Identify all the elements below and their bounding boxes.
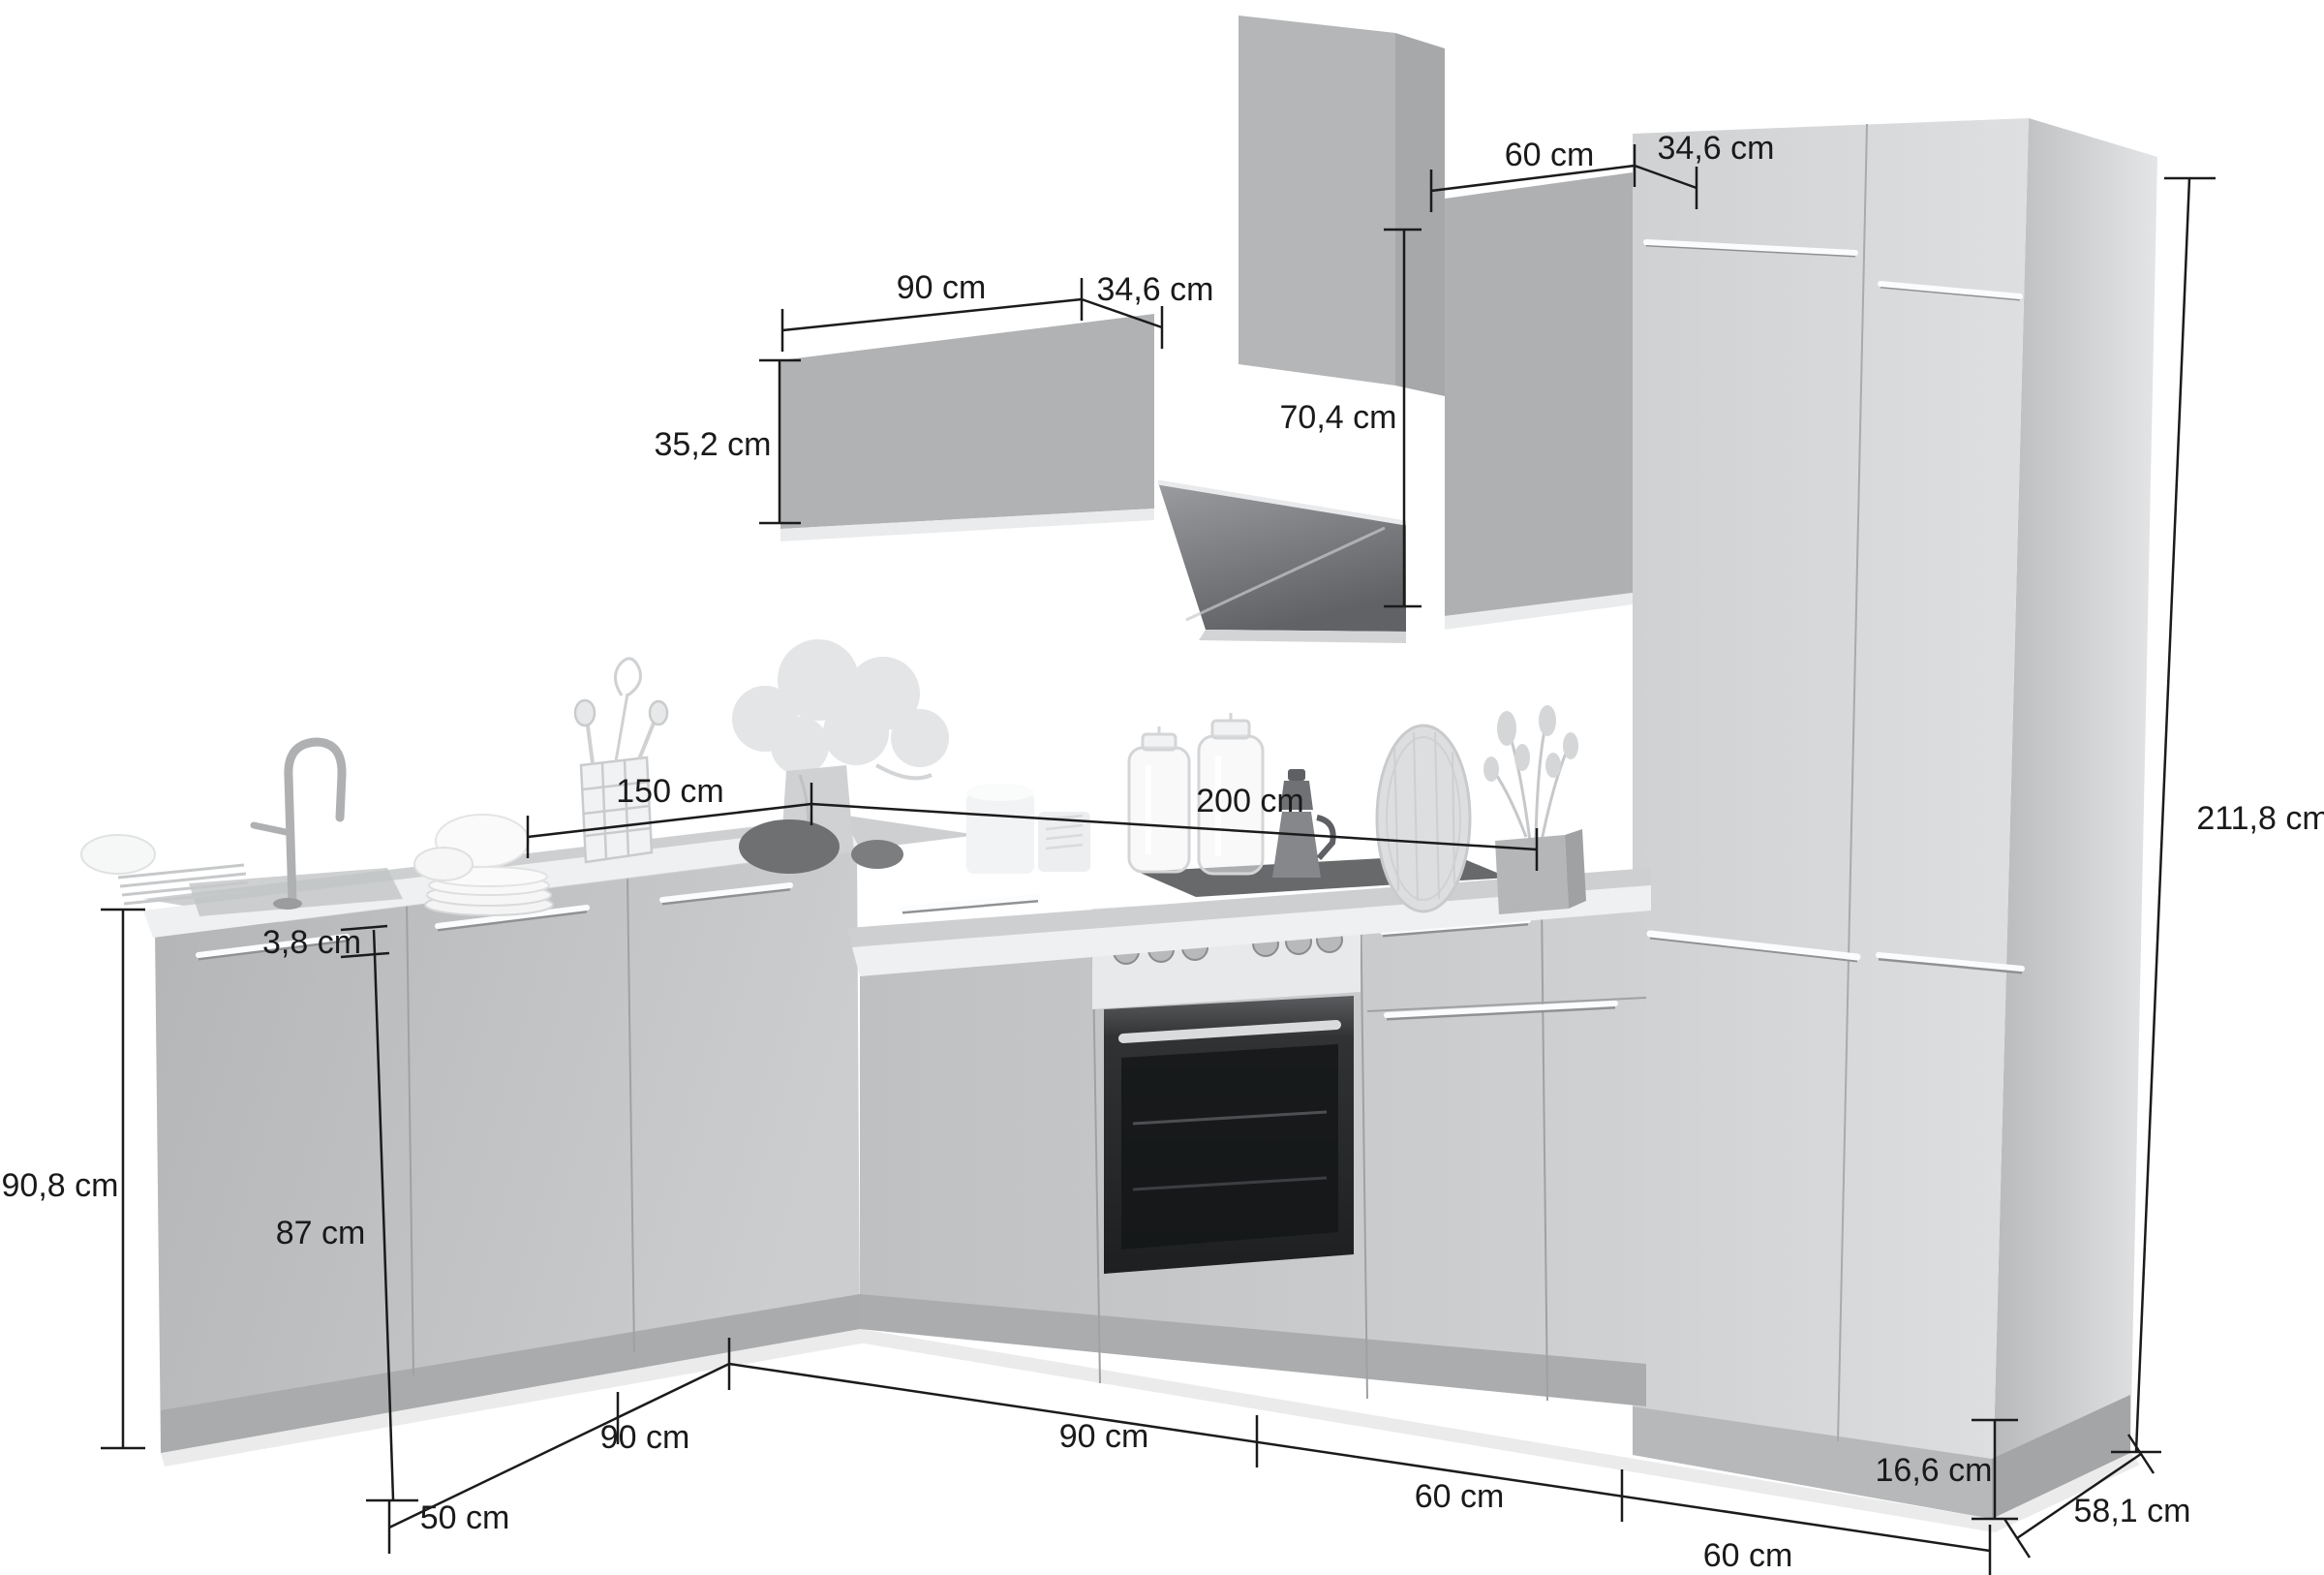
leaf: [876, 765, 932, 778]
dim-wall-cabinet-width: 90 cm: [897, 271, 987, 304]
faucet-base: [273, 898, 302, 910]
dim-tall-unit-height: 211,8 cm: [2196, 802, 2324, 835]
dim-wall-cabinet-height: 35,2 cm: [655, 428, 772, 461]
dim-base-total-height: 90,8 cm: [2, 1169, 119, 1202]
hood-canopy-base: [1199, 630, 1406, 643]
hood-chimney-side: [1395, 33, 1445, 396]
bowl: [81, 835, 155, 874]
sink-area: [118, 742, 403, 916]
wall-cabinet-left: [780, 314, 1154, 541]
tall-cabinet-block: [1633, 118, 2157, 1519]
white-canisters: [966, 784, 1090, 874]
dim-left-corner-width: 90 cm: [600, 1421, 690, 1454]
tall-cabinet-front: [1633, 118, 2029, 1519]
dim-sink-cabinet-width: 50 cm: [420, 1501, 510, 1534]
dim-wall-cabinet-depth: 34,6 cm: [1097, 273, 1214, 306]
dim-oven-cabinet-width: 60 cm: [1415, 1480, 1505, 1513]
dim-worktop-thickness: 3,8 cm: [262, 926, 361, 959]
cutting-board: [1377, 726, 1470, 911]
dim-right-run-length: 200 cm: [1196, 785, 1304, 818]
dim-tall-front-width: 60 cm: [1703, 1539, 1793, 1572]
dim-tall-top-depth: 34,6 cm: [1658, 132, 1775, 165]
faucet-lever: [254, 825, 290, 833]
mortar: [739, 819, 840, 874]
dim-tall-unit-depth: 58,1 cm: [2074, 1495, 2191, 1528]
dim-right-corner-width: 90 cm: [1059, 1420, 1149, 1453]
utensil-basket: [575, 659, 667, 862]
hood-chimney-front: [1238, 15, 1395, 386]
dim-left-run-length: 150 cm: [616, 775, 724, 808]
bowl: [414, 848, 473, 880]
extractor-hood: [1158, 15, 1445, 643]
dim-upper-cabinet-width: 60 cm: [1505, 139, 1595, 171]
potted-plant: [1483, 705, 1586, 914]
dim-upper-cabinet-height: 70,4 cm: [1280, 401, 1397, 434]
small-bowl: [851, 840, 903, 869]
upper-cabinet-right: [1445, 172, 1633, 630]
oven-door-glass: [1121, 1044, 1338, 1250]
kitchen-render: [0, 0, 2324, 1575]
dim-plinth-height: 16,6 cm: [1876, 1454, 1993, 1487]
dim-base-cabinet-height: 87 cm: [276, 1217, 366, 1250]
kitchen-dimension-diagram: 90 cm 34,6 cm 60 cm 34,6 cm 35,2 cm 70,4…: [0, 0, 2324, 1575]
moka-handle: [1317, 818, 1333, 858]
